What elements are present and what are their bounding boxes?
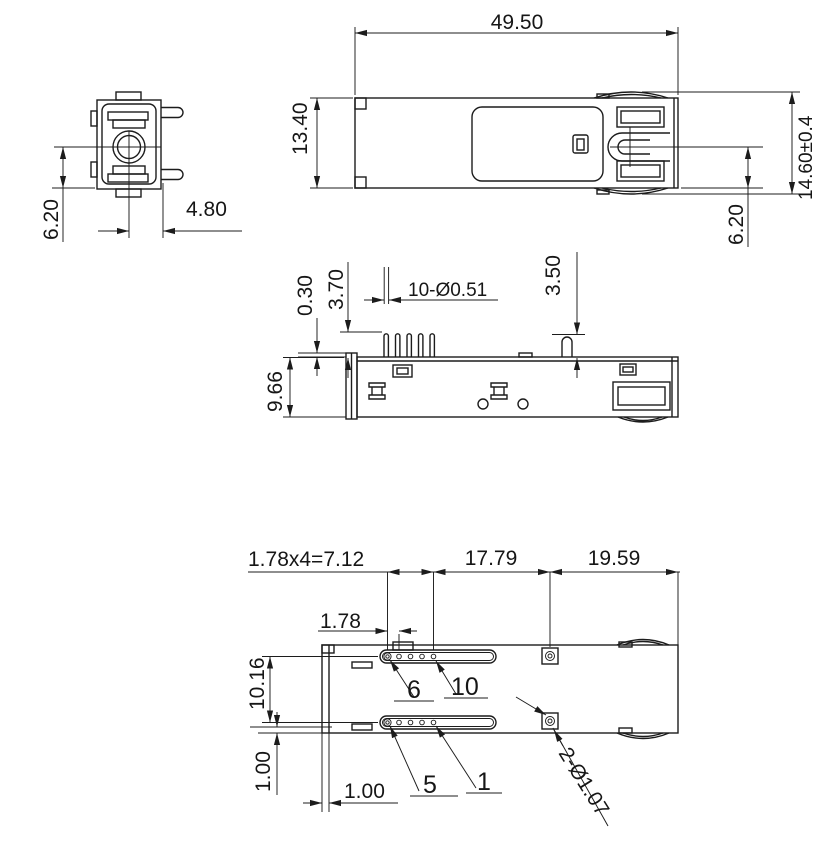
technical-drawing: 6.20 4.80 49.50	[0, 0, 818, 841]
side-view: 9.66 0.30 3.70 10-Ø0.51 3.50	[264, 252, 678, 422]
dim-bottom-pin-pitch: 1.78	[320, 610, 361, 633]
side-post	[562, 337, 572, 357]
dim-bottom-row-to-edge: 1.00	[252, 751, 275, 792]
drawing-sheet: 6.20 4.80 49.50	[0, 0, 818, 841]
dim-top-width: 13.40	[289, 102, 312, 155]
pin-label-10: 10	[451, 673, 479, 701]
dim-bottom-hole-to-edge: 19.59	[588, 547, 641, 570]
dim-top-length: 49.50	[491, 11, 544, 34]
bottom-view: 1.78x4=7.12 17.79 19.59 1.78 10.16 1.00 …	[246, 547, 680, 826]
dim-bottom-row-spacing: 10.16	[246, 657, 269, 710]
side-pin-1	[384, 334, 388, 357]
dim-side-post-height: 3.50	[542, 255, 565, 296]
dim-top-latch-offset: 6.20	[725, 204, 748, 245]
dim-front-width: 4.80	[186, 198, 227, 221]
bottom-body-outline	[322, 645, 678, 733]
top-spring-lower	[594, 188, 668, 194]
front-pin-lower	[161, 170, 183, 180]
dim-bottom-pin-span: 1.78x4=7.12	[248, 548, 364, 571]
bottom-pad-lower	[542, 713, 558, 729]
dim-side-standoff: 0.30	[294, 275, 317, 316]
pin-label-6: 6	[407, 676, 421, 704]
dim-top-overall-width: 14.60±0.4	[796, 115, 817, 200]
side-pin-2	[396, 334, 400, 357]
front-pin-upper	[161, 108, 183, 118]
bottom-slot-lower	[380, 716, 496, 729]
side-pin-4	[419, 334, 423, 357]
dim-side-body-height: 9.66	[264, 371, 287, 412]
pin-label-5: 5	[423, 771, 437, 799]
dim-bottom-edge-wall: 1.00	[344, 780, 385, 803]
bottom-pad-upper	[542, 648, 558, 664]
pin-label-1: 1	[477, 768, 491, 796]
side-pin-5	[430, 334, 434, 357]
dim-bottom-hole-callout: 2-Ø1.07	[554, 743, 614, 820]
top-spring-upper	[594, 92, 668, 98]
side-pin-3	[407, 334, 411, 357]
bottom-slot-upper	[380, 650, 496, 663]
dim-side-pin-height: 3.70	[325, 269, 348, 310]
dim-front-height: 6.20	[40, 199, 63, 240]
front-view: 6.20 4.80	[40, 92, 242, 242]
dim-side-pin-callout: 10-Ø0.51	[408, 280, 487, 301]
dim-bottom-pins-to-hole: 17.79	[465, 547, 518, 570]
top-view: 49.50 13.40 14.60±0.4 6.20	[289, 11, 817, 247]
